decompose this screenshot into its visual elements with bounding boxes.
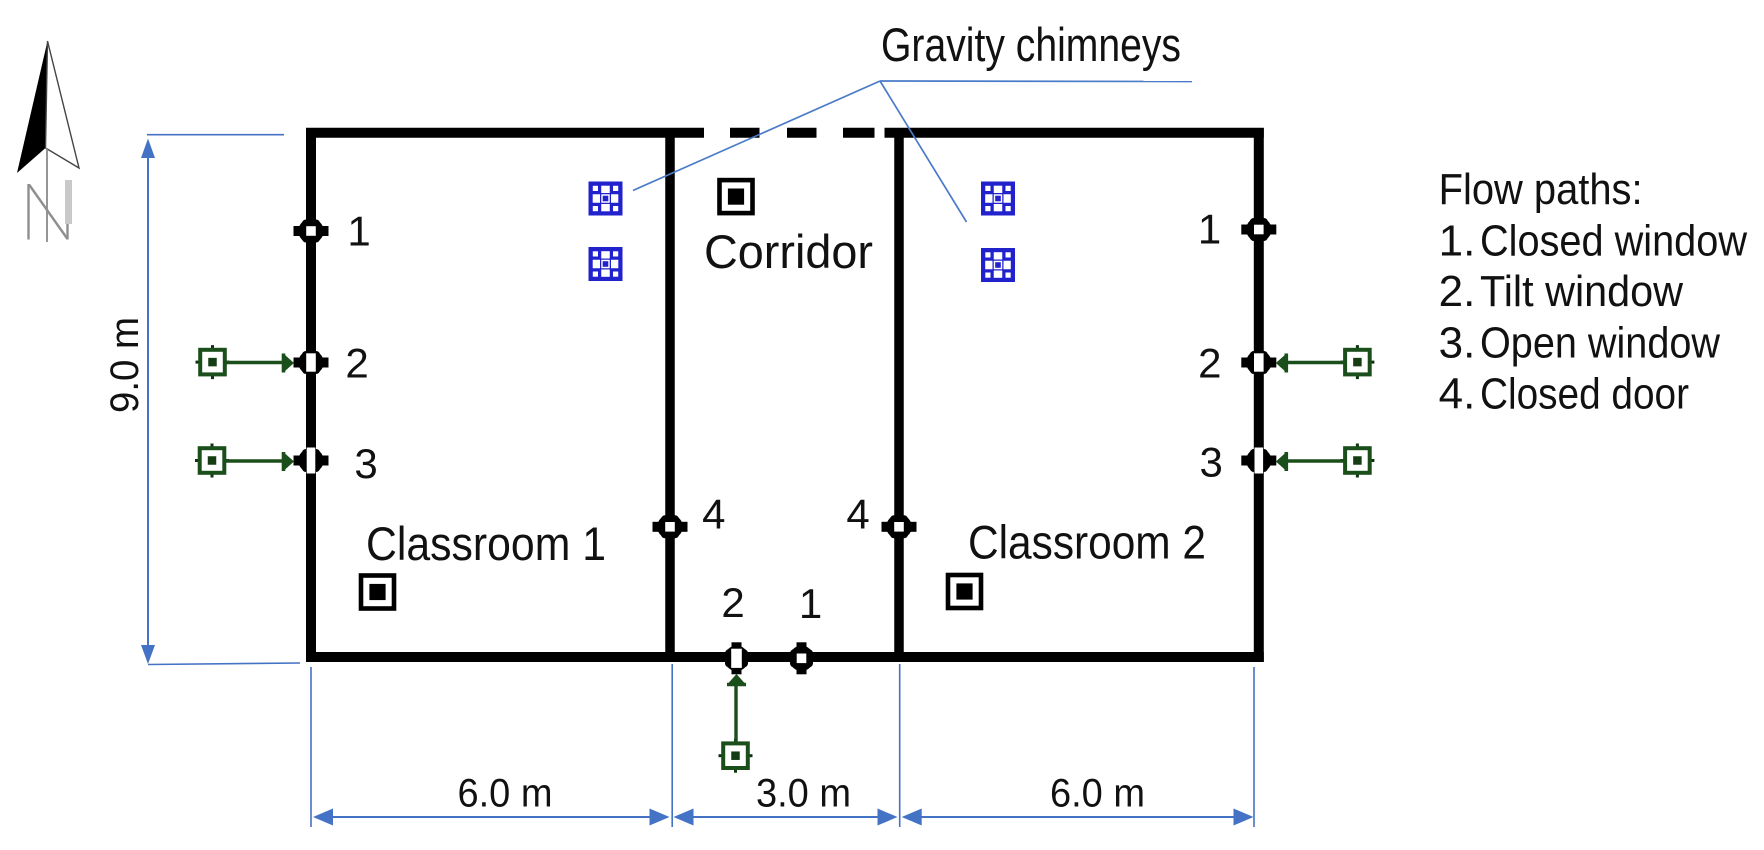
- svg-text:6.0 m: 6.0 m: [1050, 772, 1145, 816]
- svg-text:3: 3: [354, 440, 377, 487]
- svg-text:9.0 m: 9.0 m: [103, 317, 147, 413]
- svg-text:2: 2: [345, 340, 368, 387]
- svg-text:Open window: Open window: [1480, 319, 1720, 368]
- svg-text:4: 4: [702, 491, 725, 538]
- svg-text:3.0 m: 3.0 m: [756, 772, 851, 816]
- svg-text:Classroom 2: Classroom 2: [968, 516, 1206, 569]
- svg-text:3.: 3.: [1439, 319, 1476, 368]
- svg-text:4.: 4.: [1439, 369, 1476, 418]
- svg-text:Corridor: Corridor: [704, 225, 873, 278]
- svg-text:Closed window: Closed window: [1480, 217, 1747, 266]
- svg-text:2: 2: [721, 579, 744, 626]
- svg-text:2: 2: [1198, 340, 1221, 387]
- svg-text:Classroom 1: Classroom 1: [366, 517, 606, 570]
- svg-text:3: 3: [1200, 439, 1223, 486]
- svg-text:1: 1: [347, 208, 370, 255]
- svg-text:Tilt window: Tilt window: [1480, 267, 1683, 316]
- svg-text:4: 4: [846, 491, 869, 538]
- svg-text:Closed door: Closed door: [1480, 369, 1689, 418]
- svg-text:Flow paths:: Flow paths:: [1439, 165, 1643, 214]
- svg-text:6.0 m: 6.0 m: [458, 772, 553, 816]
- svg-text:1: 1: [799, 580, 822, 627]
- svg-text:2.: 2.: [1439, 267, 1476, 316]
- svg-text:Gravity chimneys: Gravity chimneys: [881, 18, 1181, 71]
- svg-text:1: 1: [1198, 206, 1221, 253]
- svg-text:1.: 1.: [1439, 217, 1476, 266]
